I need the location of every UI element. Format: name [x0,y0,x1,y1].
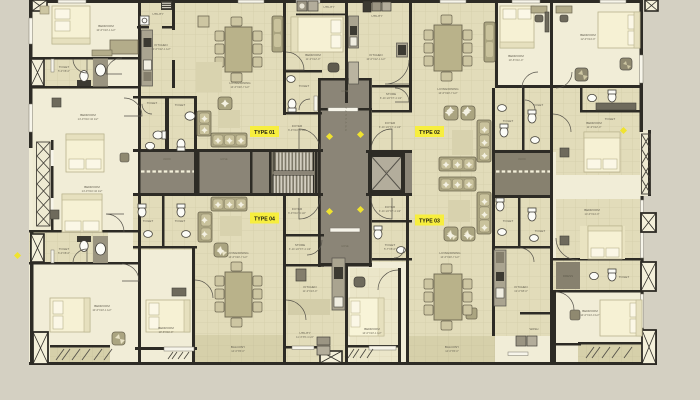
svg-text:TOILET: TOILET [503,119,514,123]
svg-text:TOILET: TOILET [59,65,70,69]
svg-text:KITCHEN: KITCHEN [303,285,316,289]
svg-text:TOILET: TOILET [605,117,616,121]
svg-text:TOILET: TOILET [147,101,158,105]
svg-text:UTILITY: UTILITY [371,14,382,18]
svg-text:TOILET: TOILET [59,247,70,251]
svg-text:11'-3"X12'-0": 11'-3"X12'-0" [587,125,602,129]
svg-text:KITCHEN: KITCHEN [514,285,527,289]
svg-text:14'-6"X20'-7 1/2": 14'-6"X20'-7 1/2" [438,91,457,95]
svg-text:PASSAGE: PASSAGE [344,107,348,133]
svg-text:10'-6"X13'-1 1/2": 10'-6"X13'-1 1/2" [92,308,111,312]
svg-text:14'-6"X20'-7 1/2": 14'-6"X20'-7 1/2" [230,85,249,89]
svg-text:BEDROOM: BEDROOM [586,121,602,125]
svg-text:HOSE: HOSE [220,157,228,161]
svg-text:5'-0"X8'-0": 5'-0"X8'-0" [58,251,70,255]
svg-text:14'-0"X14'-0 1/2": 14'-0"X14'-0 1/2" [580,313,599,317]
svg-text:5'-0"X8'-0": 5'-0"X8'-0" [58,69,70,73]
svg-text:14'-0"X14'-0": 14'-0"X14'-0" [585,212,600,216]
svg-text:BEDROOM: BEDROOM [584,208,600,212]
svg-text:14'-0"X10'-10 1/2": 14'-0"X10'-10 1/2" [78,117,99,121]
svg-text:TYPE 04: TYPE 04 [254,217,275,223]
svg-text:14'-6"X5'-0": 14'-6"X5'-0" [445,349,459,353]
svg-text:LIVING/DINING: LIVING/DINING [437,87,459,91]
svg-text:WARD: WARD [163,157,171,161]
svg-text:12'-0"X14'-0": 12'-0"X14'-0" [581,37,596,41]
svg-text:11'-3"X5'-4 1/2": 11'-3"X5'-4 1/2" [296,335,314,339]
svg-text:TOILET: TOILET [619,275,630,279]
svg-text:10'-0"X12'-1 1/2": 10'-0"X12'-1 1/2" [366,57,385,61]
svg-text:BEDROOM: BEDROOM [80,113,96,117]
svg-text:TYPE 02: TYPE 02 [419,130,440,136]
svg-text:14'-6"X5'-0": 14'-6"X5'-0" [231,349,245,353]
svg-text:FOYER: FOYER [292,207,303,211]
svg-text:BEDROOM: BEDROOM [364,327,380,331]
svg-text:10'-6"X13'-1 1/2": 10'-6"X13'-1 1/2" [96,28,115,32]
svg-text:BALCONY: BALCONY [445,345,459,349]
svg-text:FOYER: FOYER [385,205,396,209]
svg-text:BEDROOM: BEDROOM [305,53,321,57]
svg-text:BEDROOM: BEDROOM [98,24,114,28]
svg-text:6'-10 1/2"X7'-4 1/2": 6'-10 1/2"X7'-4 1/2" [379,209,401,213]
svg-text:14'-6"X20'-7 1/2": 14'-6"X20'-7 1/2" [440,255,459,259]
svg-text:TOILET: TOILET [535,229,546,233]
svg-text:14'-0"X10'-10 1/2": 14'-0"X10'-10 1/2" [82,189,103,193]
svg-text:BEDROOM: BEDROOM [158,326,174,330]
svg-text:HOSE: HOSE [341,89,349,93]
svg-text:14'-6"X20'-7 1/2": 14'-6"X20'-7 1/2" [228,255,247,259]
svg-text:BEDROOM: BEDROOM [84,185,100,189]
svg-text:10'-6"X11'-0": 10'-6"X11'-0" [509,58,524,62]
svg-text:TOILET: TOILET [385,243,396,247]
svg-text:FOYER: FOYER [292,124,303,128]
svg-text:BEDROOM: BEDROOM [94,304,110,308]
svg-text:STORE: STORE [295,243,305,247]
svg-text:KITCHEN: KITCHEN [154,43,167,47]
svg-text:6'-10 1/2"X7'-4 1/2": 6'-10 1/2"X7'-4 1/2" [380,96,402,100]
svg-text:WASH: WASH [530,327,539,331]
svg-text:WARD: WARD [518,157,526,161]
svg-text:BEDROOM: BEDROOM [508,54,524,58]
svg-text:6'-10 1/2"X7'-4 1/2": 6'-10 1/2"X7'-4 1/2" [289,247,311,251]
svg-text:STORE: STORE [386,92,396,96]
svg-text:UTILITY: UTILITY [299,331,310,335]
svg-text:UTILITY: UTILITY [323,5,334,9]
svg-text:10'-6"X11'-0": 10'-6"X11'-0" [159,330,174,334]
svg-text:6'-9"X10'-4 1/2": 6'-9"X10'-4 1/2" [288,211,306,215]
svg-text:LIFT: LIFT [384,169,390,173]
svg-text:10'-0"X12'-1 1/2": 10'-0"X12'-1 1/2" [151,47,170,51]
svg-text:TOILET: TOILET [175,219,186,223]
svg-text:TOILET: TOILET [175,103,186,107]
svg-text:14'-0"X13'-1 1/2": 14'-0"X13'-1 1/2" [362,331,381,335]
svg-text:HOSE: HOSE [341,244,349,248]
svg-text:TYPE 03: TYPE 03 [419,219,440,225]
svg-text:TOILET: TOILET [143,219,154,223]
svg-text:TOILET: TOILET [533,103,544,107]
svg-text:TYPE 01: TYPE 01 [254,130,275,136]
svg-text:6'-10 1/2"X7'-4 1/2": 6'-10 1/2"X7'-4 1/2" [379,125,401,129]
svg-text:LIVING/DINING: LIVING/DINING [439,251,461,255]
svg-text:13'-0"X8'-0": 13'-0"X8'-0" [514,289,528,293]
svg-text:5'-7"X8'-0": 5'-7"X8'-0" [384,247,396,251]
svg-text:BEDROOM: BEDROOM [582,309,598,313]
svg-text:11'-3"X12'-0": 11'-3"X12'-0" [306,57,321,61]
svg-text:DRESS: DRESS [563,274,573,278]
svg-text:BALCONY: BALCONY [231,345,245,349]
svg-text:UTILITY: UTILITY [152,12,163,16]
svg-text:LIVING/DINING: LIVING/DINING [227,251,249,255]
svg-text:LIVING/DINING: LIVING/DINING [229,81,251,85]
svg-text:TOILET: TOILET [299,84,310,88]
svg-text:6'-9"X10'-4 1/2": 6'-9"X10'-4 1/2" [288,128,306,132]
svg-text:KITCHEN: KITCHEN [369,53,382,57]
svg-text:11'-3"X13'-0": 11'-3"X13'-0" [303,289,318,293]
svg-text:BEDROOM: BEDROOM [580,33,596,37]
svg-text:FOYER: FOYER [385,121,396,125]
svg-text:TOILET: TOILET [503,219,514,223]
